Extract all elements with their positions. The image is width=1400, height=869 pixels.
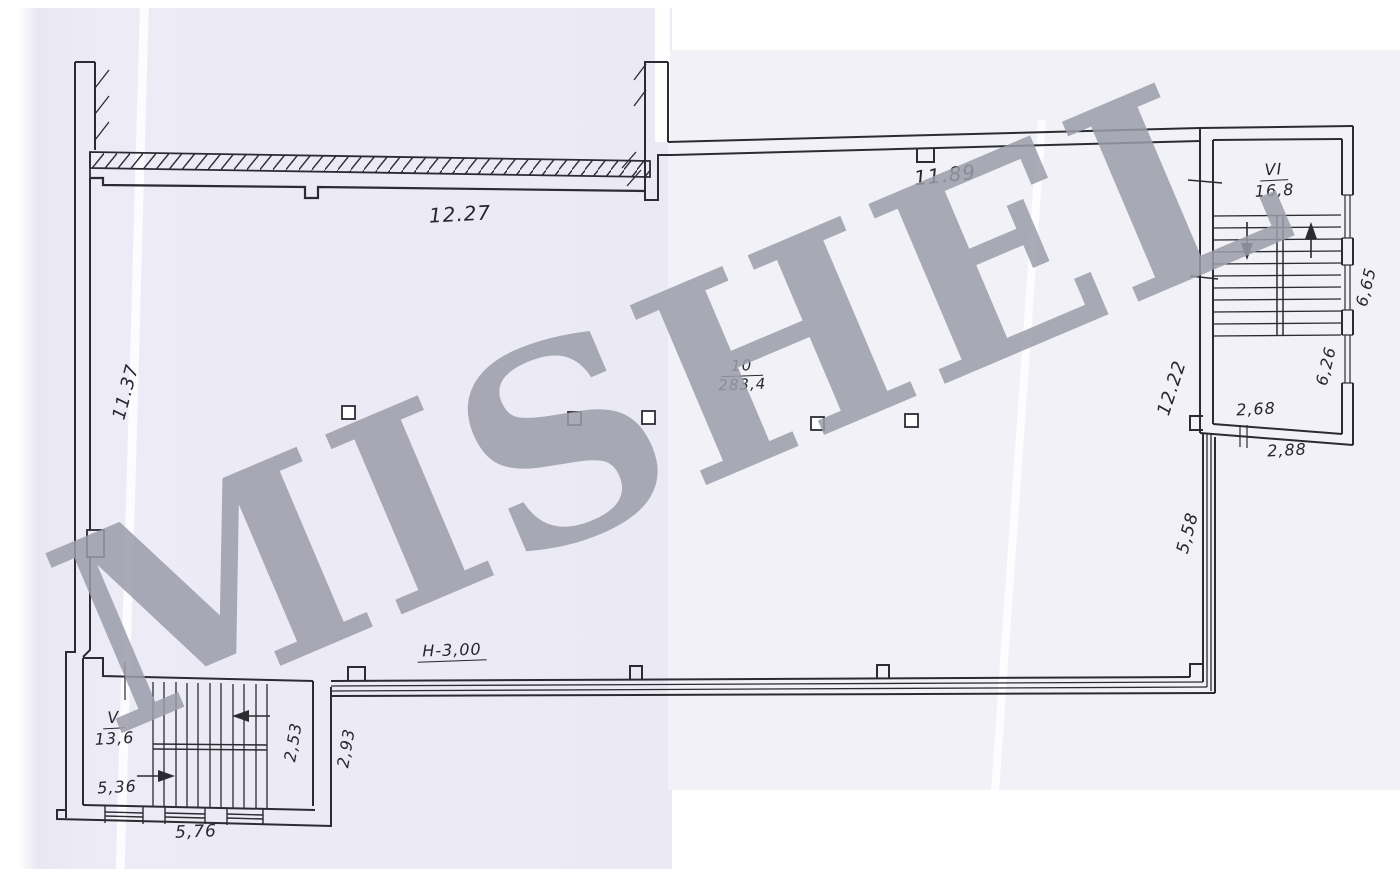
dim-stair-vi-inner-width: 2,68 xyxy=(1236,398,1277,419)
height-mark-text: H-3,00 xyxy=(417,639,487,662)
structural-columns xyxy=(342,406,918,430)
scanned-floorplan-page: 12.27 11.89 11.37 12.22 5,58 H-3,00 10 2… xyxy=(0,0,1400,869)
room-label: 10 283,4 xyxy=(717,357,766,394)
dim-stair-vi-outer-width: 2,88 xyxy=(1267,439,1308,460)
stairwell-vi-name: VI xyxy=(1259,159,1288,182)
dim-stair-v-outer-width: 5,76 xyxy=(175,821,218,842)
hatched-wall-band xyxy=(90,152,650,177)
stairwell-v-name: V xyxy=(102,707,125,729)
dim-top-left-wall: 12.27 xyxy=(428,200,491,227)
stairwell-vi-label: VI 16,8 xyxy=(1253,159,1295,201)
stairwell-v-label: V 13,6 xyxy=(93,707,135,749)
right-top-wall xyxy=(622,62,1200,200)
room-area: 283,4 xyxy=(718,375,766,393)
flight-up-arrow-icon xyxy=(232,710,270,722)
wall-pilaster xyxy=(87,530,104,557)
flight-down-arrow-icon xyxy=(137,770,175,782)
stairwell-vi-area: 16,8 xyxy=(1254,180,1295,201)
room-number: 10 xyxy=(721,357,763,377)
height-mark: H-3,00 xyxy=(417,639,487,662)
floorplan-drawing xyxy=(0,0,1400,869)
dim-stair-v-inner-width: 5,36 xyxy=(97,776,138,797)
stairwell-v-area: 13,6 xyxy=(94,728,135,749)
pier-hatch-ticks xyxy=(95,70,109,140)
